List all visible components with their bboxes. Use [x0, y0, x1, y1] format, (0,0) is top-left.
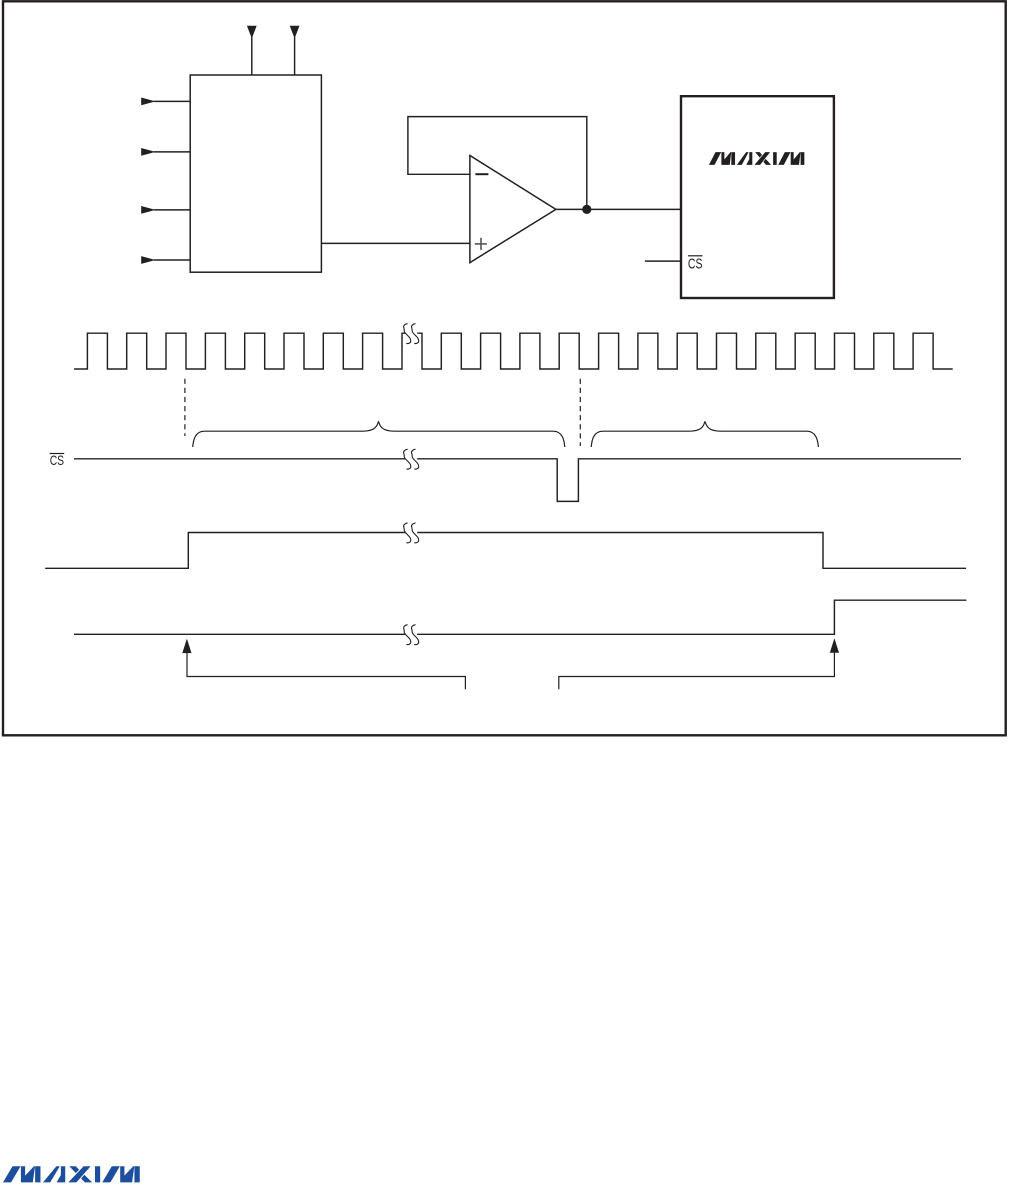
svg-text:CS: CS — [688, 257, 703, 273]
svg-text:CS: CS — [50, 453, 64, 468]
